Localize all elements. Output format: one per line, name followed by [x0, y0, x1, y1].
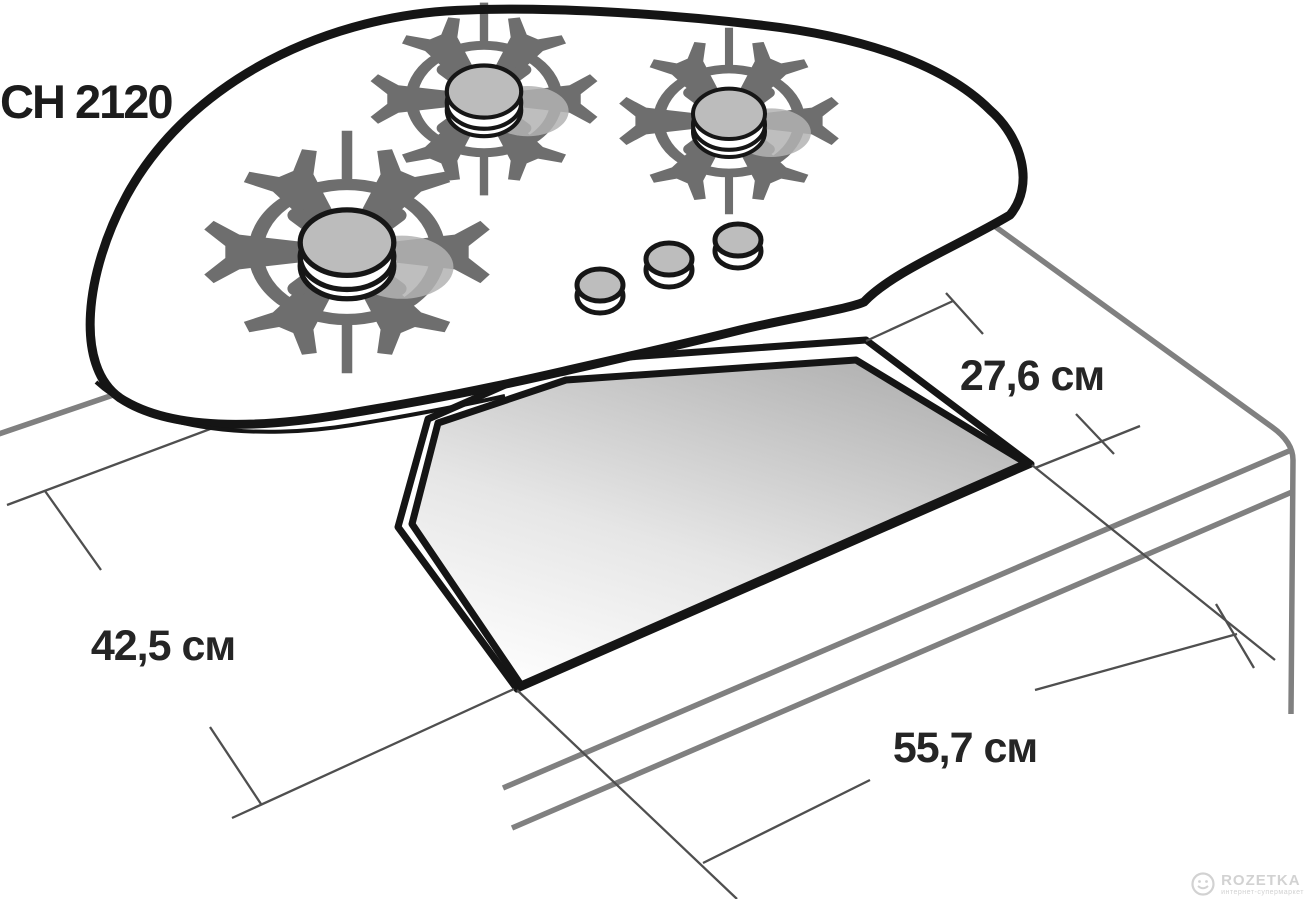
dim-length-tick-right	[1216, 604, 1254, 668]
rozetka-smiley-icon	[1190, 871, 1216, 897]
dim-width-tick-left	[946, 293, 983, 334]
dim-length-extension-right	[1032, 465, 1275, 660]
dim-length-line-right	[1035, 634, 1237, 690]
knob-middle-icon	[646, 243, 692, 287]
watermark: ROZETKA интернет-супермаркет	[1190, 871, 1304, 897]
dim-width-extension-left	[866, 301, 953, 341]
knob-left-icon	[577, 269, 623, 313]
watermark-brand: ROZETKA	[1221, 873, 1304, 888]
dim-width-tick-right	[1076, 414, 1114, 454]
dim-length-line-left	[703, 780, 870, 863]
dim-depth-line-lower	[232, 689, 514, 818]
installation-diagram: CH 2120 27,6 см 42,5 см 55,7 см ROZETKA …	[0, 0, 1310, 899]
cutout	[398, 340, 1031, 689]
watermark-tagline: интернет-супермаркет	[1221, 889, 1304, 896]
dim-depth-tick-lower	[210, 727, 261, 804]
dim-depth-label: 42,5 см	[91, 622, 235, 670]
dim-depth-tick-upper	[45, 491, 101, 570]
diagram-svg: CH 2120 27,6 см 42,5 см 55,7 см	[0, 0, 1310, 899]
dim-length-extension-left	[517, 690, 737, 899]
knob-right-icon	[715, 224, 761, 268]
dim-width-label: 27,6 см	[960, 352, 1104, 400]
cutout-opening	[412, 360, 1026, 685]
dim-width-extension-right	[1035, 426, 1140, 468]
dim-length-label: 55,7 см	[893, 724, 1037, 772]
model-title: CH 2120	[0, 75, 172, 128]
